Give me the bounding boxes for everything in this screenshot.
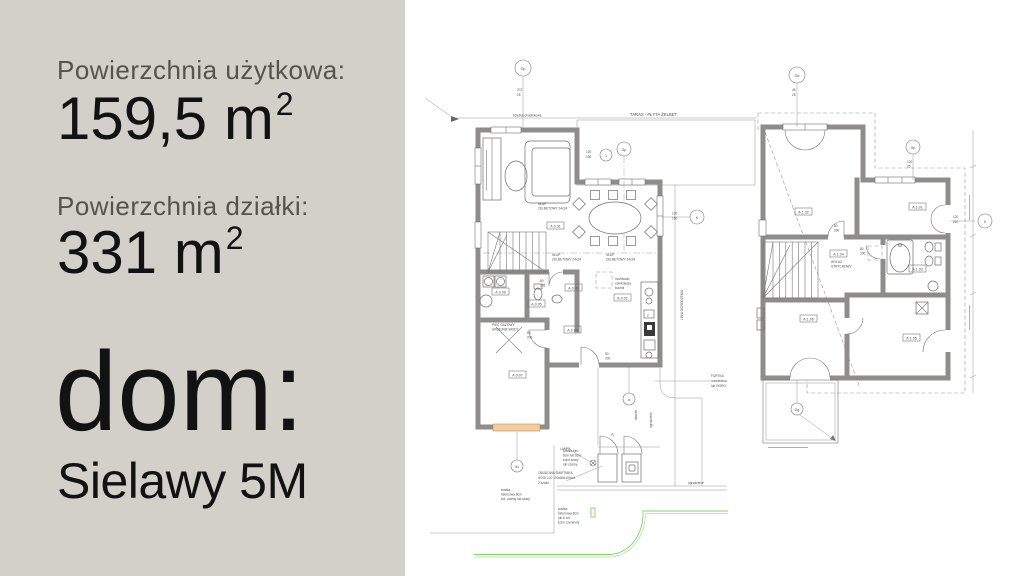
dim-right-2: 150 [672,217,678,221]
usable-area-label: Powierzchnia użytkowa: [57,55,345,86]
kitchen-note: zamknięcia [615,282,631,286]
paving-note: kostka bet. [563,449,579,453]
kitchen-note: kuchni [615,286,625,290]
usable-area-value: 159,5 m2 [57,84,294,153]
column-note: SŁUP [606,253,614,257]
entry-marker: A [611,432,614,437]
room-label: A.0.04 [567,328,577,332]
svg-text:2: 2 [647,314,649,318]
bin-note: OBUDOWA ŚMIETNIKA [538,470,573,475]
door-dim: 80 [527,331,531,335]
grid-bubble-right-upper: 6 [984,220,986,224]
balcony: Gg [763,380,838,448]
paving-note: kol. czarny lub szary [501,497,530,501]
gate-note: lub OGRO [711,384,726,388]
column-note: SŁUP [538,202,546,206]
garage-note: PIEC GAZOWY [492,323,515,327]
usable-area-exponent: 2 [276,86,294,122]
upper-dim-line [969,130,976,393]
paving-note: kostka [558,507,567,511]
upper-annotations: WYŁAZ STRYCHOWY 80 200 80 200 [831,224,866,269]
dim-mid-2: 150 [586,155,592,159]
paving-note: kolor szary [563,458,579,462]
dim-top-2: 25 [517,93,521,97]
garage-note: GRZEJNIK WODY [492,328,519,332]
paving-note: 8cm lub 6cm [563,454,581,458]
garage-door-sill [493,424,540,431]
entry-walkway: d A daszek ogrodzenie [611,365,653,437]
gate-symbol [591,508,595,517]
paving-note: kostka [501,488,510,492]
room-label: A.0.03 [568,286,578,290]
paving-note: betonowa 8cm [558,512,579,516]
room-label: A.0.02 [617,296,627,300]
canopy-label: daszek [634,409,638,420]
paving-note: kolor czerwony [558,521,580,525]
upper-room-labels: A.1.01 A.1.02 A.1.03 A.1.04 A.1.05 A.1.0… [795,203,926,341]
dim-top-upper: 25 [792,93,796,97]
bin-note: 2 sztuki [538,481,549,485]
floor-plans: 2 [405,0,1024,576]
grid-bubble-mid-upper: Gp [911,146,916,150]
door-dim: 90 [605,352,609,356]
room-label: A.0.07 [512,373,522,377]
bin-note: HOGI 120 100x85x100cm [538,476,575,480]
ground-floor-plan: 2 [425,60,757,557]
gate-note: rozwierana [711,379,727,383]
attic-note: STRYCHOWY [831,265,853,269]
dim-mid-upper: 120 [907,160,913,164]
door-dim: 200 [860,252,866,256]
floor-plan-drawing: 2 [405,0,1024,576]
grid-bubble-mid2: 1 [605,154,607,158]
paving-note: betonowa 8cm [501,493,522,497]
fence-label-vert: ogrodzenie [649,412,653,428]
grid-bubble-balcony: Gg [795,408,800,412]
dim-mid-1: 120 [586,150,592,154]
upper-grid-bubbles: Gd 46 25 Gp 120 25 6 120 210 [789,67,992,228]
plot-area-value: 331 m2 [57,218,244,287]
grid-bubble-mid: Gp [622,148,627,152]
room-label: A.1.04 [833,252,843,256]
room-label: A.1.06 [803,317,813,321]
house-prefix: dom: [55,336,304,448]
ground-stairs [488,232,546,272]
room-label: A.1.01 [912,205,922,209]
paving-note: lub czarny [563,463,578,467]
terrace-label: TARAS - PŁYTA ŻELBET. [630,112,678,117]
paving-note: lub 6 cm [558,516,570,520]
usable-area-number: 159,5 m [57,85,274,152]
door-dim: 80 [834,224,838,228]
door-dim: 200 [527,336,533,340]
door-dim: 200 [605,357,611,361]
gate-note: FURTKA [711,374,725,378]
wardrobe [483,138,501,200]
dim-top-1: 272 [517,88,523,92]
column-note: ŻELBETOWY 24x24 [606,257,635,262]
walk-bubble: d [628,398,630,402]
door-dim: 80 [540,279,544,283]
column-note: SŁUP [552,253,560,257]
slide: Powierzchnia użytkowa: 159,5 m2 Powierzc… [0,0,1024,576]
kitchen-note: możliwość [615,277,630,281]
upper-floor-plan: Gg Gd 46 25 Gp 120 25 [757,67,992,448]
grid-bubble-top-upper: Gd [795,74,800,78]
fence-label: ogrodzenie [688,481,704,485]
room-label: A.1.03 [912,267,922,271]
dim-right-upper: 120 [953,215,959,219]
info-panel: Powierzchnia użytkowa: 159,5 m2 Powierzc… [0,0,405,576]
rug [505,161,527,191]
column-note: ŻELBETOWY 24x24 [552,257,581,262]
plot-area-exponent: 2 [226,220,244,256]
grid-bubble-right: 6 [696,216,698,220]
door-dim: 205 [540,284,546,288]
dim-right-1: 120 [672,212,678,216]
dim-right-upper: 210 [953,220,959,224]
room-label: A.0.06 [495,290,505,294]
plot-area-number: 331 m [57,219,224,286]
toilet-upper [916,242,941,314]
attic-note: WYŁAZ [831,260,842,264]
room-label: A.1.02 [798,210,808,214]
room-label: A.0.05 [531,302,541,306]
upper-stairs [763,242,818,298]
walkway-label: ścieżka chodnikowa [513,114,542,118]
grid-bubble-top: Gp [521,67,526,71]
house-name: Sielawy 5M [57,452,308,510]
sofa [525,141,570,203]
dining-table [573,191,658,246]
grid-bubble-gate: d1 [515,465,519,469]
column-note: ŻELBETOWY 24x24 [538,206,567,211]
room-label: A.0.01 [550,224,560,228]
door-dim: 80 [860,247,864,251]
room-label: A.1.05 [906,336,916,340]
door-dim: 200 [834,229,840,233]
dim-top-upper: 46 [792,88,796,92]
upper-windows [759,124,915,236]
fence-line-label: LINIA OGRODZENIA [680,289,684,320]
dim-mid-upper: 25 [907,165,911,169]
paving-edge [474,508,728,557]
